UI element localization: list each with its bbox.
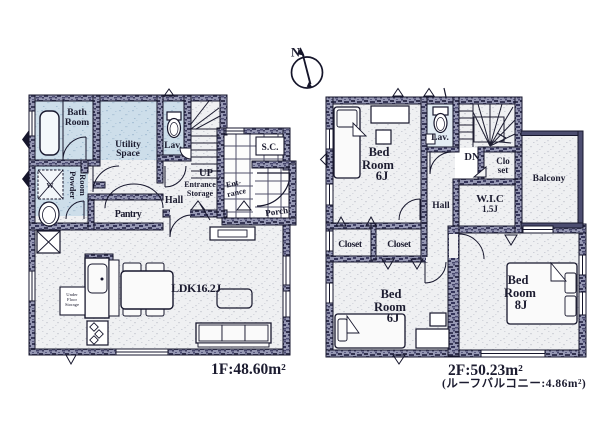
svg-text:Bath: Bath: [67, 108, 87, 118]
svg-text:Storage: Storage: [187, 189, 214, 198]
svg-text:Bed: Bed: [369, 145, 390, 159]
svg-text:DN: DN: [464, 152, 480, 163]
svg-text:Powder: Powder: [68, 171, 78, 199]
svg-text:Space: Space: [116, 149, 140, 159]
svg-text:2F:50.23m²: 2F:50.23m²: [448, 362, 523, 379]
svg-text:Pantry: Pantry: [115, 209, 142, 220]
svg-text:Entrance: Entrance: [184, 180, 216, 189]
svg-text:Storage: Storage: [65, 302, 79, 307]
svg-text:Hall: Hall: [432, 201, 450, 211]
svg-text:S.C.: S.C.: [262, 143, 279, 153]
svg-text:Lav.: Lav.: [164, 141, 182, 151]
svg-text:Balcony: Balcony: [533, 174, 566, 184]
svg-text:6J: 6J: [376, 169, 389, 183]
svg-text:Lav.: Lav.: [431, 133, 449, 143]
svg-text:W: W: [47, 182, 54, 190]
svg-text:6J: 6J: [387, 311, 400, 325]
svg-text:1F:48.60m²: 1F:48.60m²: [211, 361, 286, 378]
svg-text:(ルーフバルコニー:4.86m²): (ルーフバルコニー:4.86m²): [442, 377, 586, 390]
svg-text:Hall: Hall: [165, 195, 184, 206]
svg-text:UP: UP: [199, 168, 214, 179]
svg-text:8J: 8J: [515, 298, 528, 312]
svg-text:Room: Room: [78, 174, 88, 196]
svg-text:LDK16.2J: LDK16.2J: [171, 281, 221, 295]
svg-text:Room: Room: [65, 118, 89, 128]
svg-text:Closet: Closet: [338, 240, 363, 250]
svg-text:Bed: Bed: [381, 287, 402, 301]
svg-text:Closet: Closet: [387, 240, 412, 250]
svg-text:1.5J: 1.5J: [482, 204, 498, 214]
svg-text:set: set: [498, 165, 509, 175]
svg-text:N: N: [291, 46, 300, 60]
svg-text:Bed: Bed: [508, 273, 529, 287]
